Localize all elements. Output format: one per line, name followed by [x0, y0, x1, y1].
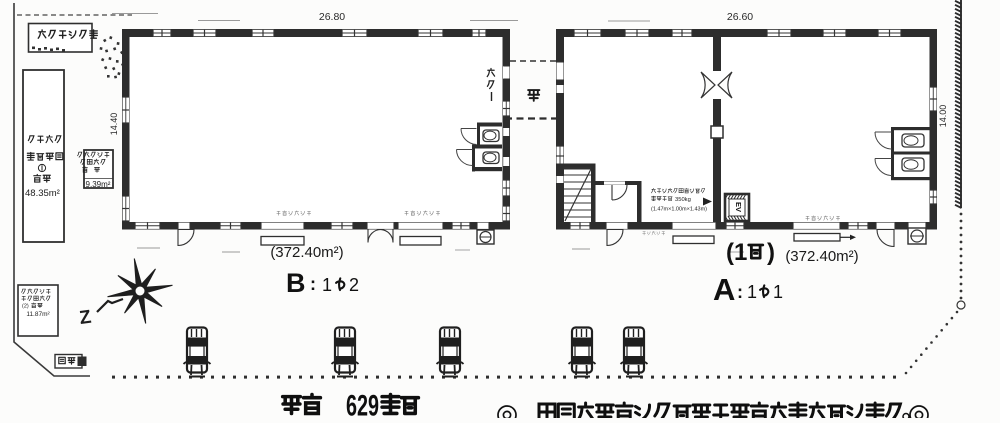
svg-text:2: 2	[349, 275, 359, 295]
svg-text:B: B	[286, 268, 306, 298]
svg-text:26.60: 26.60	[727, 11, 753, 23]
svg-text::: :	[737, 282, 743, 302]
svg-text:A: A	[713, 272, 735, 307]
svg-text:9.39m²: 9.39m²	[86, 180, 111, 189]
svg-text:): )	[767, 239, 775, 266]
svg-text:(1: (1	[726, 239, 747, 266]
svg-text:11.87m²: 11.87m²	[26, 311, 50, 318]
svg-text:26.80: 26.80	[319, 11, 345, 23]
svg-text:(372.40m²): (372.40m²)	[785, 248, 858, 265]
svg-text:(2): (2)	[22, 304, 29, 310]
svg-text:350kg: 350kg	[675, 197, 691, 203]
svg-text:(1.47m×1.00m×1.43m): (1.47m×1.00m×1.43m)	[651, 207, 707, 213]
svg-text:1: 1	[747, 282, 757, 302]
svg-text:14.00: 14.00	[938, 105, 948, 128]
svg-text:48.35m²: 48.35m²	[25, 188, 60, 199]
svg-text::: :	[310, 274, 316, 294]
svg-text:1: 1	[773, 282, 783, 302]
svg-text:629: 629	[346, 390, 379, 419]
svg-text:EV: EV	[734, 202, 743, 212]
svg-text:1: 1	[322, 275, 332, 295]
svg-text:14.40: 14.40	[109, 113, 119, 136]
svg-text:(372.40m²): (372.40m²)	[270, 244, 343, 261]
